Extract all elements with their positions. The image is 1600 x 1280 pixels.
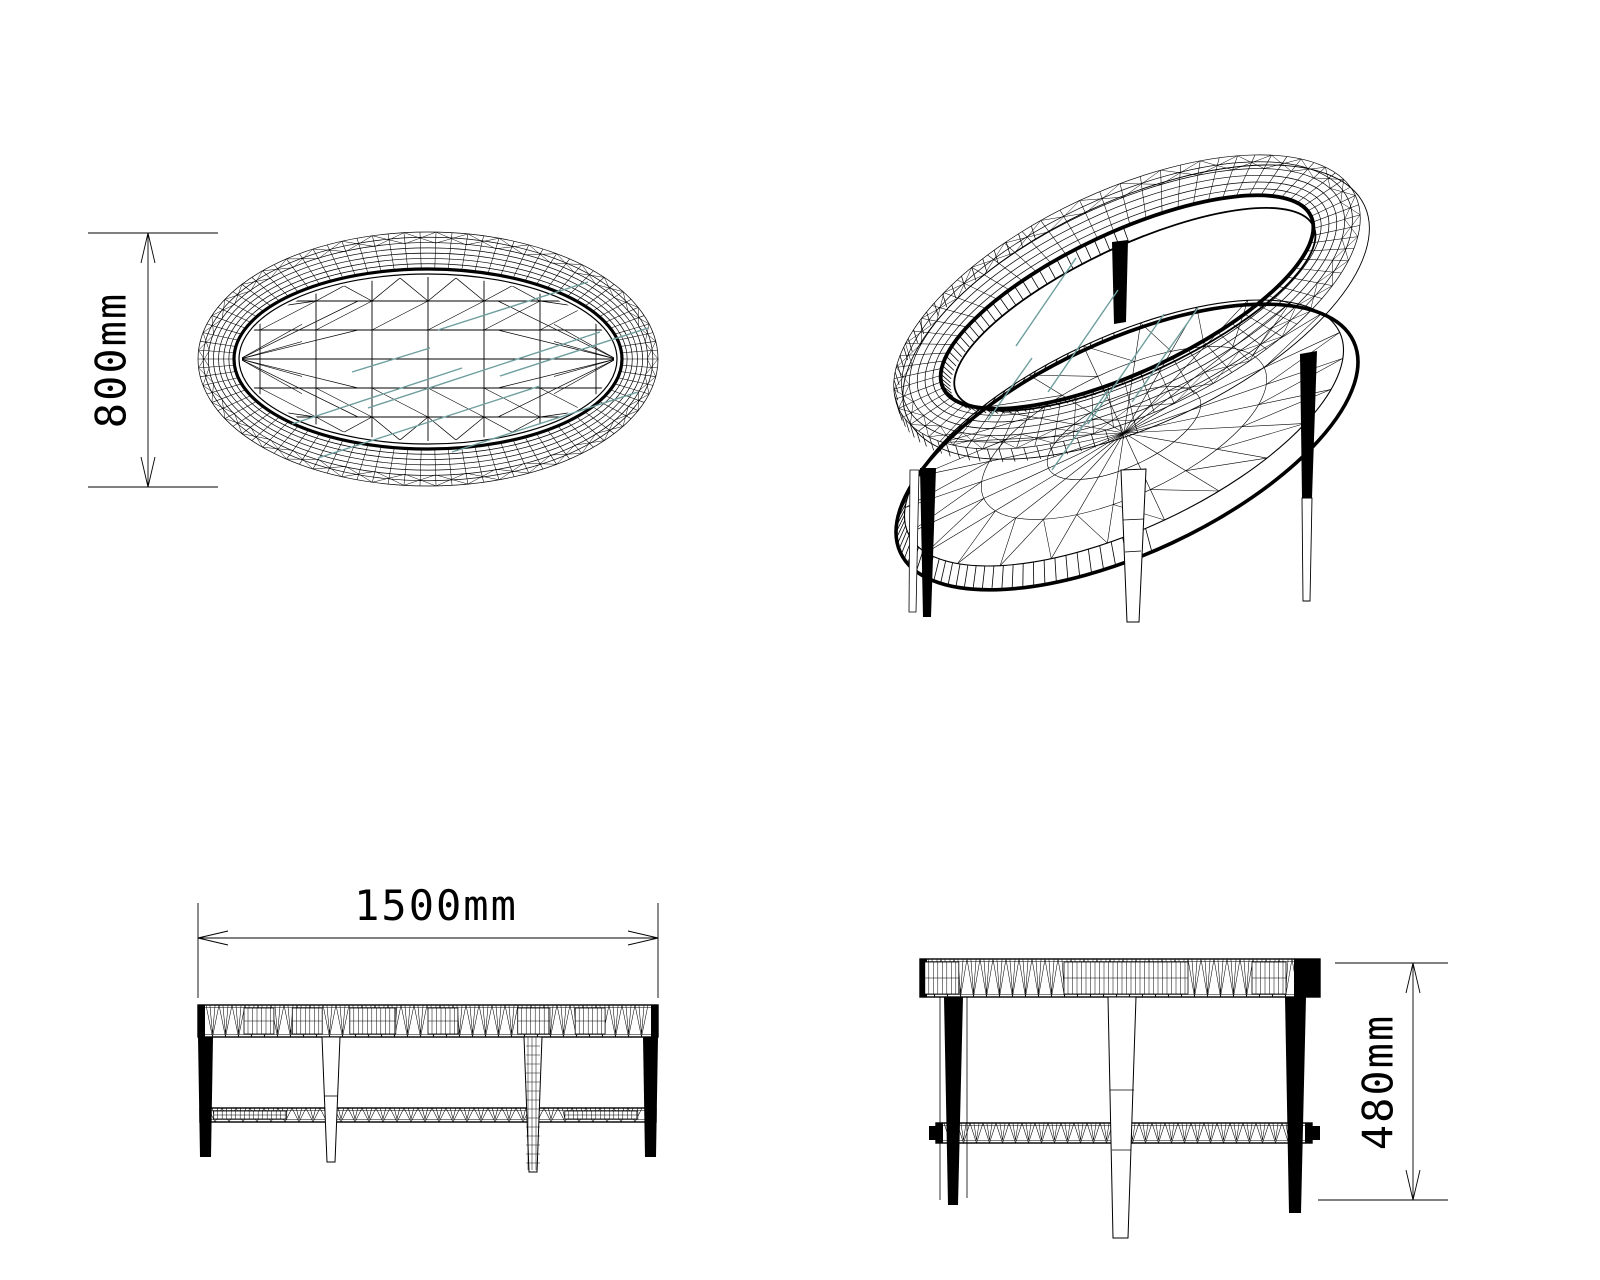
cad-wireframe-drawing: 800mm 1500mm 480mm <box>0 0 1600 1280</box>
dimension-side-height: 480mm <box>1318 963 1448 1200</box>
view-side-elevation <box>920 959 1320 1238</box>
dimension-label-480mm: 480mm <box>1354 1014 1403 1150</box>
dimension-front-length: 1500mm <box>198 881 658 998</box>
dimension-label-1500mm: 1500mm <box>354 881 518 930</box>
dimension-label-800mm: 800mm <box>87 292 136 428</box>
view-top-plan <box>198 232 658 486</box>
view-front-elevation <box>198 1005 658 1172</box>
drawing-sheet: 800mm 1500mm 480mm <box>0 0 1600 1280</box>
view-isometric <box>851 94 1412 649</box>
